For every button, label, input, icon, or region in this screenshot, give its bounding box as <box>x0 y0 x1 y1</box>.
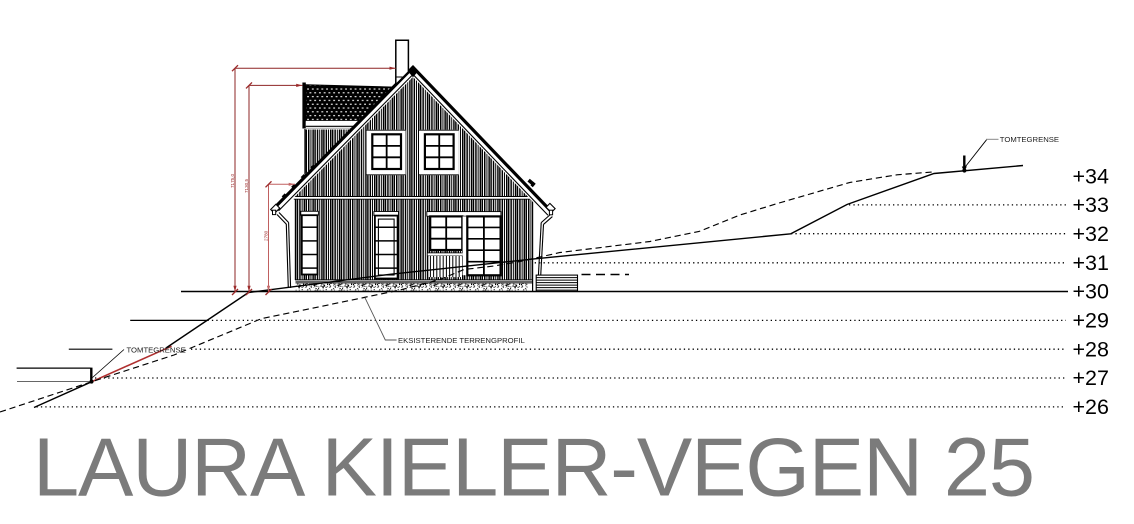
svg-text:+29: +29 <box>1073 309 1109 333</box>
svg-text:+32: +32 <box>1073 222 1109 246</box>
svg-text:TOMTEGRENSE: TOMTEGRENSE <box>1000 135 1059 144</box>
svg-text:+34: +34 <box>1073 164 1110 188</box>
svg-text:+26: +26 <box>1073 395 1110 419</box>
svg-text:+28: +28 <box>1073 337 1110 361</box>
svg-text:+30: +30 <box>1073 280 1110 304</box>
svg-text:+31: +31 <box>1073 251 1109 275</box>
svg-text:7130,5: 7130,5 <box>244 179 249 193</box>
svg-text:+27: +27 <box>1073 366 1109 390</box>
svg-text:LAURA KIELER-VEGEN 25: LAURA KIELER-VEGEN 25 <box>33 420 1034 513</box>
svg-text:+33: +33 <box>1073 193 1110 217</box>
svg-text:7175,0: 7175,0 <box>230 174 235 188</box>
svg-text:2780: 2780 <box>263 230 268 241</box>
svg-text:TOMTEGRENSE: TOMTEGRENSE <box>127 346 186 355</box>
svg-text:EKSISTERENDE TERRENGPROFIL: EKSISTERENDE TERRENGPROFIL <box>398 336 525 345</box>
